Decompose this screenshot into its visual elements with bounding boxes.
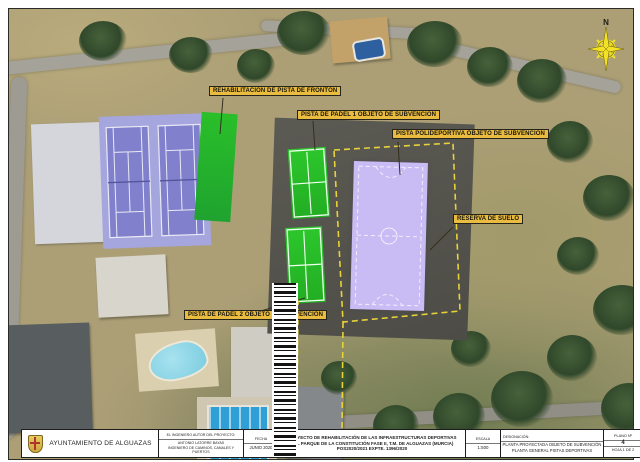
engineer-title: INGENIERO DE CAMINOS, CANALES Y PUERTOS: [159, 446, 243, 455]
label-padel2: PISTA DE PADEL 2 OBJETO DE SUBVENCIÓN: [184, 310, 327, 320]
barcode-icon: [272, 283, 298, 457]
compass-north-label: N: [603, 18, 609, 27]
subsidy-boundary-dashed: [334, 143, 460, 322]
client-name: AYUNTAMIENTO DE ALGUAZAS: [49, 440, 151, 447]
title-block-project-cell: PROYECTO DE REHABILITACIÓN DE LAS INFRAE…: [278, 429, 466, 458]
alguazas-crest-icon: [28, 435, 43, 453]
annotation-overlay: [9, 9, 633, 459]
leader-fronton: [220, 98, 223, 134]
title-block-engineer-cell: EL INGENIERO AUTOR DEL PROYECTO: ANTONIO…: [158, 429, 244, 458]
scale-heading: ESCALA: [466, 436, 500, 444]
label-polideportiva: PISTA POLIDEPORTIVA OBJETO DE SUBVENCIÓN: [392, 129, 549, 139]
label-padel1: PISTA DE PADEL 1 OBJETO DE SUBVENCIÓN: [297, 110, 440, 120]
aerial-map: REHABILITACIÓN DE PISTA DE FRONTÓN PISTA…: [8, 8, 634, 460]
designation-line2: PLANTA GENERAL PISTAS DEPORTIVAS: [512, 448, 592, 453]
title-block-scale-cell: ESCALA 1:500: [465, 429, 501, 458]
boundary-extension-line: [342, 322, 343, 433]
title-block-client-cell: AYUNTAMIENTO DE ALGUAZAS: [21, 429, 159, 458]
designation-heading: DESIGNACIÓN:: [501, 434, 603, 442]
plan-sheet: REHABILITACIÓN DE PISTA DE FRONTÓN PISTA…: [0, 0, 640, 462]
title-block-designation-cell: DESIGNACIÓN: PLANTA PROYECTADA OBJETO DE…: [500, 429, 604, 458]
engineer-heading: EL INGENIERO AUTOR DEL PROYECTO:: [159, 432, 243, 440]
leader-reserva: [430, 227, 453, 250]
label-fronton: REHABILITACIÓN DE PISTA DE FRONTÓN: [209, 86, 341, 96]
title-block-plan-number-cell: PLANO Nº 4 HOJA 1 DE 2: [603, 429, 640, 458]
sheet-number-value: HOJA 1 DE 2: [604, 446, 640, 454]
title-block: AYUNTAMIENTO DE ALGUAZAS EL INGENIERO AU…: [22, 429, 640, 458]
scale-value: 1:500: [478, 446, 489, 451]
project-title-line3: POS2020/2021 EXPTE. 1396/2020: [337, 446, 408, 452]
label-reserva: RESERVA DE SUELO: [453, 214, 523, 224]
compass-rose-icon: N: [586, 15, 626, 73]
leader-padel1: [313, 121, 315, 150]
date-value: JUNIO 2020: [249, 446, 272, 451]
